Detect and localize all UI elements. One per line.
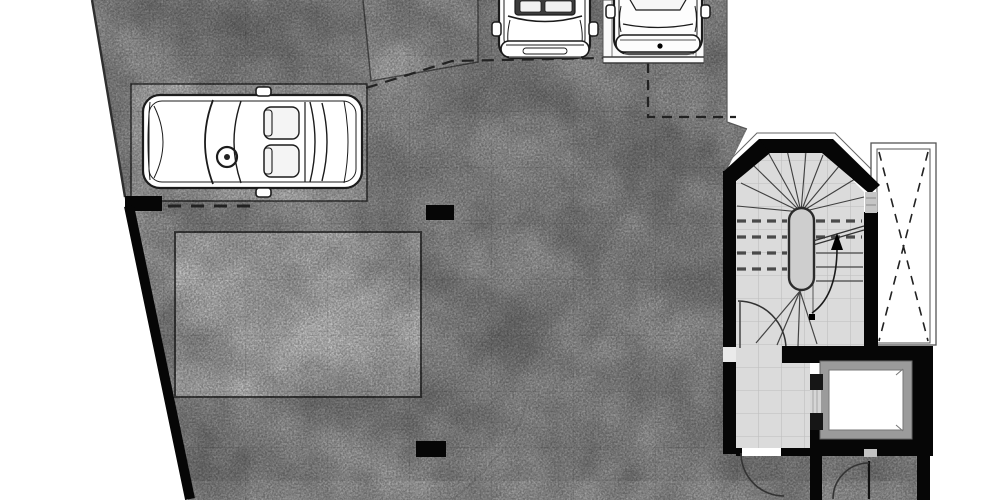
side-mirror — [492, 22, 501, 36]
arrow-start-dot — [809, 314, 815, 320]
stair-wall-opening — [865, 192, 877, 213]
car-rear-view — [606, 0, 710, 54]
rear-window — [629, 0, 687, 10]
elevator-shaft — [810, 361, 912, 439]
seat — [264, 107, 299, 139]
elevator-car-interior — [829, 370, 903, 430]
side-mirror — [606, 5, 615, 18]
x-brace-shaft — [871, 143, 936, 345]
floor-plan-canvas — [0, 0, 1000, 500]
elevator-door-jamb — [810, 413, 823, 430]
side-mirror — [256, 188, 271, 197]
elevator-door-jamb — [810, 374, 823, 390]
rear-bumper — [616, 35, 700, 52]
wall-threshold-gap — [723, 347, 736, 362]
side-mirror — [589, 22, 598, 36]
floor-plan-drawing — [0, 0, 1000, 500]
stair-newel — [789, 208, 814, 290]
column — [426, 205, 454, 220]
front-bumper — [501, 41, 589, 57]
tow-hook-dot — [657, 43, 662, 48]
seat — [264, 145, 299, 177]
car-front-view — [492, 0, 598, 58]
column — [416, 441, 446, 457]
car-top-view — [143, 87, 362, 197]
elevator-door-panel — [810, 390, 821, 413]
side-mirror — [701, 5, 710, 18]
side-mirror — [256, 87, 271, 96]
